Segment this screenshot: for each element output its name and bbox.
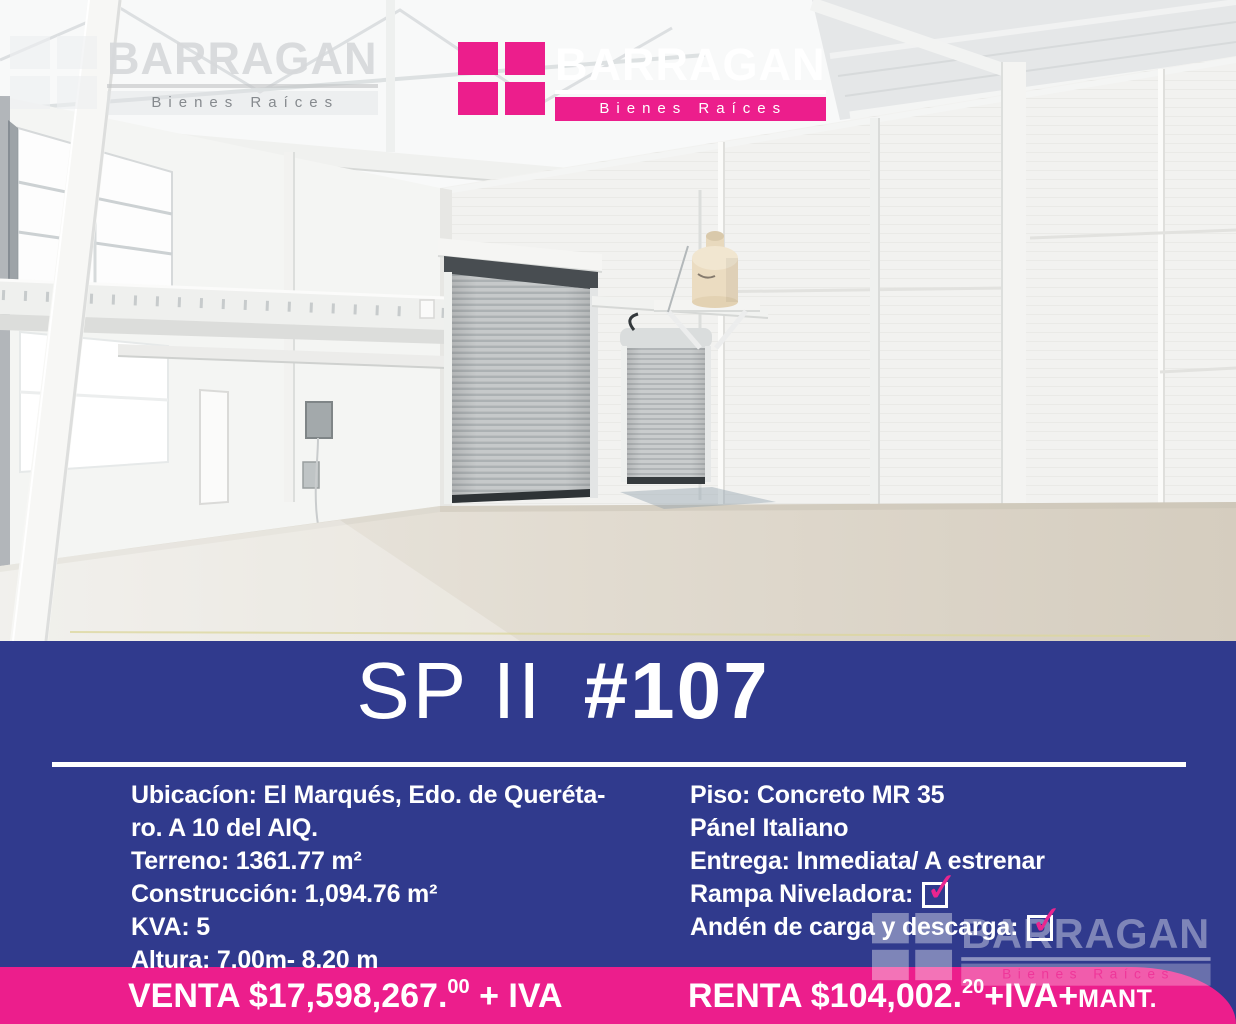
warehouse-photo: BARRAGAN Bienes Raíces BARRAGAN Bienes R… [0,0,1236,641]
logo-square [915,950,952,980]
check-mark-icon: ✓ [924,866,960,908]
detail-entrega: Entrega: Inmediata/ A estrenar [690,845,1230,878]
brand-name: BARRAGAN [555,42,826,87]
detail-construccion: Construcción: 1,094.76 m² [131,878,676,911]
logo-square [872,950,909,980]
logo-divider [961,957,1210,961]
electrical-box [306,402,332,438]
sale-price-main: VENTA $17,598,267. [128,977,447,1015]
logo-grid-icon [458,42,545,115]
checkbox-checked-icon: ✓ [1027,915,1053,941]
property-title-number: #107 [584,646,770,735]
detail-anden-carga: Andén de carga y descarga: ✓ [690,911,1230,944]
detail-kva: KVA: 5 [131,911,676,944]
rent-price-mant: MANT. [1078,985,1157,1013]
logo-divider [555,90,826,94]
detail-piso: Piso: Concreto MR 35 [690,779,1230,812]
sale-price-tail: + IVA [470,977,563,1015]
detail-terreno: Terreno: 1361.77 m² [131,845,676,878]
title-divider-line [52,762,1186,767]
roller-door-small [620,314,712,484]
detail-anden-label: Andén de carga y descarga: [690,911,1018,944]
property-title-name: SP II [356,646,543,735]
detail-ubicacion-line2: ro. A 10 del AIQ. [131,812,676,845]
roller-door-large [420,238,602,504]
sale-price: VENTA $17,598,267.00 + IVA [128,976,563,1016]
logo-text-block: BARRAGAN Bienes Raíces [107,36,378,115]
brand-name: BARRAGAN [107,36,378,81]
property-title: SP II #107 [0,649,1236,733]
property-info-panel: SP II #107 Ubicacíon: El Marqués, Edo. d… [0,641,1236,1024]
logo-square [505,42,545,75]
logo-square [57,36,97,69]
brand-tagline: Bienes Raíces [961,964,1210,986]
logo-square [10,76,50,109]
logo-text-block: BARRAGAN Bienes Raíces [555,42,826,121]
logo-divider [107,84,378,88]
details-left-column: Ubicacíon: El Marqués, Edo. de Queréta- … [131,779,676,977]
logo-square [10,36,50,69]
barragan-logo-watermark-top: BARRAGAN Bienes Raíces [10,36,378,115]
logo-square [57,76,97,109]
brand-tagline: Bienes Raíces [555,97,826,121]
detail-ubicacion-line1: Ubicacíon: El Marqués, Edo. de Queréta- [131,779,676,812]
logo-square [458,42,498,75]
details-right-column: Piso: Concreto MR 35 Pánel Italiano Entr… [690,779,1230,944]
logo-square [505,82,545,115]
logo-grid-icon [10,36,97,109]
checkbox-checked-icon: ✓ [922,882,948,908]
real-estate-flyer: BARRAGAN Bienes Raíces BARRAGAN Bienes R… [0,0,1236,1024]
detail-rampa-label: Rampa Niveladora: [690,878,913,911]
check-mark-icon: ✓ [1029,899,1065,941]
brand-tagline: Bienes Raíces [107,91,378,115]
detail-panel: Pánel Italiano [690,812,1230,845]
logo-square [458,82,498,115]
detail-altura: Altura: 7.00m- 8.20 m [131,944,676,977]
barragan-logo-main: BARRAGAN Bienes Raíces [458,42,826,121]
sale-price-cents: 00 [447,976,469,998]
detail-rampa-niveladora: Rampa Niveladora: ✓ [690,878,1230,911]
